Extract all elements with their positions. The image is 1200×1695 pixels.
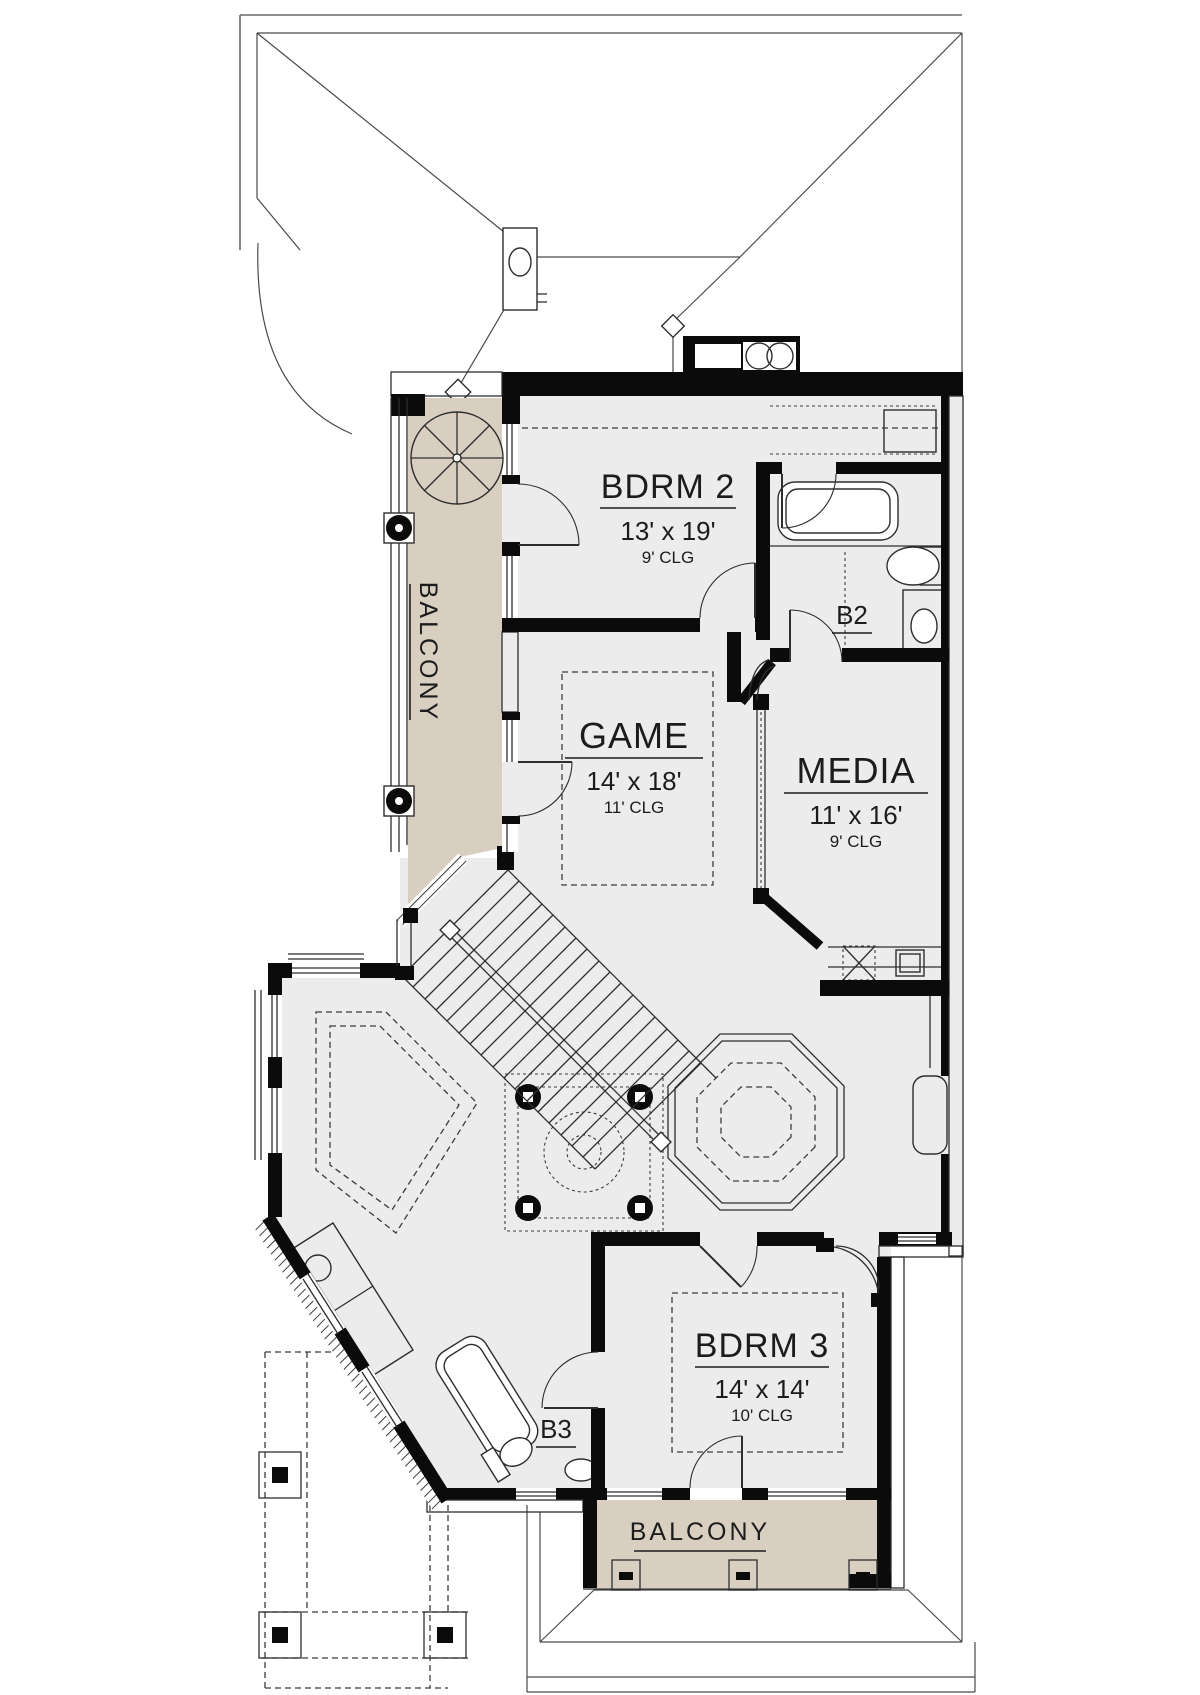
bdrm2-dims: 13' x 19' [620,516,715,546]
fireplace-icon [683,336,800,376]
balcony-bottom-name: BALCONY [630,1518,770,1546]
room-label-b2: B2 [832,600,872,633]
game-name: GAME [579,715,689,756]
bdrm2-ceiling: 9' CLG [642,548,694,567]
balcony-left-name: BALCONY [414,582,442,722]
bdrm3-ceiling: 10' CLG [731,1406,793,1425]
media-dims: 11' x 16' [809,800,902,830]
room-label-b3: B3 [536,1414,576,1447]
media-name: MEDIA [796,750,915,791]
chimney-icon [503,228,547,310]
b2-name: B2 [836,600,868,630]
floor-footprint [268,372,963,1500]
bdrm3-name: BDRM 3 [695,1327,829,1365]
media-ceiling: 9' CLG [830,832,882,851]
spiral-staircase-icon [411,412,503,504]
bathtub-icon [778,482,898,540]
room-label-balcony-left: BALCONY [410,582,442,722]
roof-top [240,15,962,434]
game-dims: 14' x 18' [586,766,681,796]
floor-plan-svg: BDRM 2 13' x 19' 9' CLG GAME 14' x 18' 1… [0,0,1200,1695]
game-ceiling: 11' CLG [604,798,665,817]
bdrm2-name: BDRM 2 [601,468,735,506]
floor-plan-page: BDRM 2 13' x 19' 9' CLG GAME 14' x 18' 1… [0,0,1200,1695]
roof-peak-marker [662,315,685,338]
b3-name: B3 [540,1414,572,1444]
bdrm3-dims: 14' x 14' [714,1374,809,1404]
